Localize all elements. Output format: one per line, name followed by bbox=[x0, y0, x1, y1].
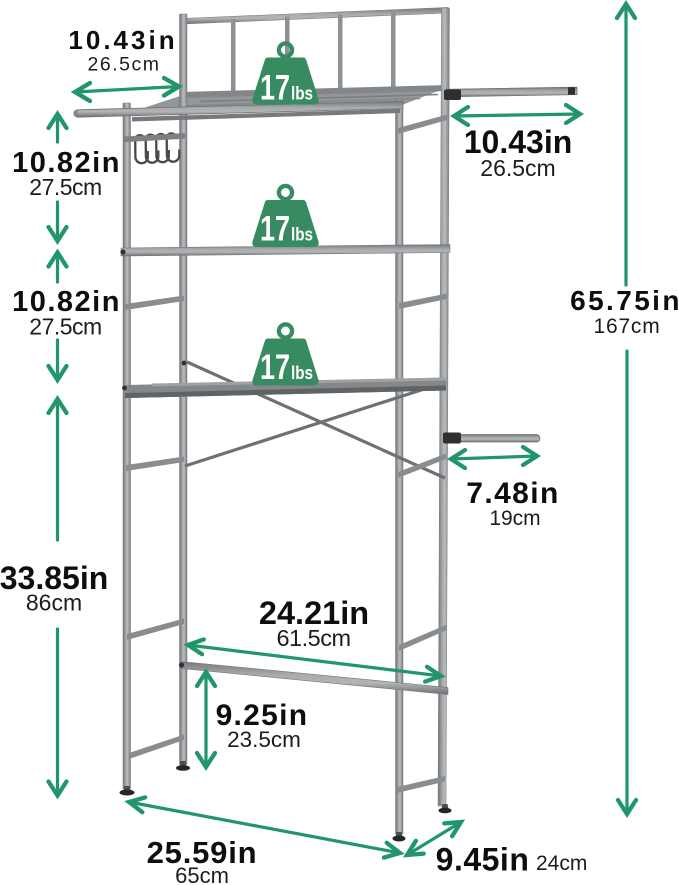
svg-text:17: 17 bbox=[260, 69, 290, 108]
svg-text:65cm: 65cm bbox=[175, 863, 229, 885]
svg-text:27.5cm: 27.5cm bbox=[29, 174, 101, 200]
svg-text:26.5cm: 26.5cm bbox=[480, 155, 555, 181]
svg-text:167cm: 167cm bbox=[593, 315, 660, 338]
svg-text:7.48in: 7.48in bbox=[466, 477, 559, 510]
svg-text:61.5cm: 61.5cm bbox=[276, 625, 350, 651]
svg-text:lbs: lbs bbox=[291, 225, 313, 245]
svg-text:lbs: lbs bbox=[291, 363, 313, 383]
svg-text:24cm: 24cm bbox=[536, 852, 587, 875]
svg-text:17: 17 bbox=[260, 348, 290, 387]
svg-text:9.45in: 9.45in bbox=[436, 842, 530, 878]
svg-text:86cm: 86cm bbox=[26, 590, 82, 616]
svg-text:lbs: lbs bbox=[291, 84, 313, 104]
svg-text:26.5cm: 26.5cm bbox=[88, 54, 161, 76]
svg-text:10.43in: 10.43in bbox=[68, 25, 177, 55]
svg-text:19cm: 19cm bbox=[489, 507, 540, 530]
svg-text:65.75in: 65.75in bbox=[570, 285, 679, 316]
svg-text:27.5cm: 27.5cm bbox=[29, 314, 101, 340]
svg-text:23.5cm: 23.5cm bbox=[227, 727, 301, 752]
svg-text:17: 17 bbox=[260, 210, 290, 249]
